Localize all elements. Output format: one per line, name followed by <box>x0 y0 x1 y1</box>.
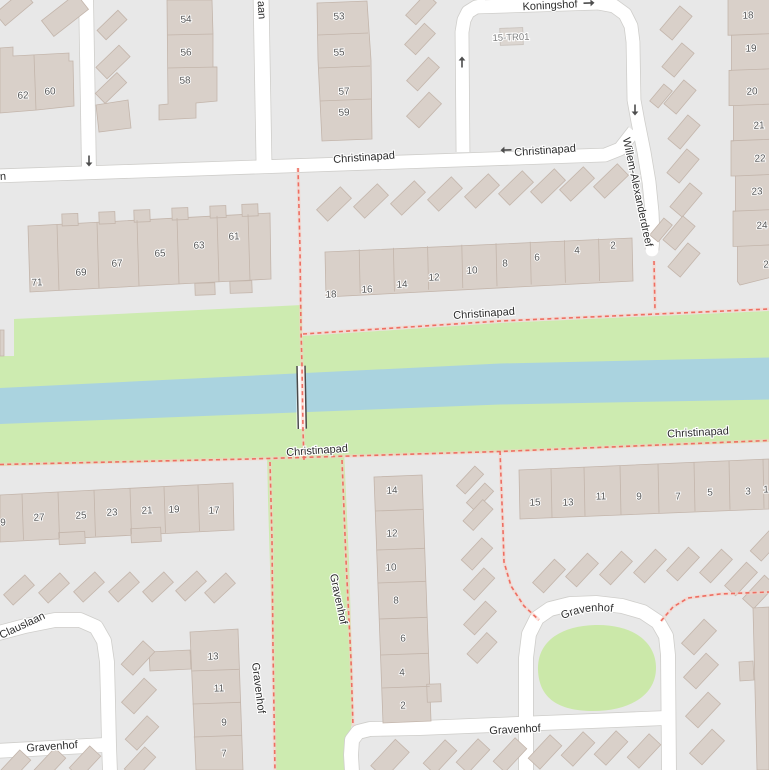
svg-text:2: 2 <box>610 240 616 251</box>
svg-text:54: 54 <box>180 14 192 25</box>
svg-text:21: 21 <box>753 120 765 131</box>
svg-text:9: 9 <box>0 517 6 528</box>
svg-text:13: 13 <box>207 651 219 662</box>
svg-text:59: 59 <box>338 107 350 118</box>
svg-text:aan: aan <box>255 0 268 19</box>
svg-text:12: 12 <box>428 272 440 283</box>
svg-text:4: 4 <box>574 245 580 256</box>
svg-text:7: 7 <box>675 491 681 502</box>
svg-text:18: 18 <box>742 10 754 21</box>
svg-text:21: 21 <box>141 505 153 516</box>
svg-text:3: 3 <box>745 486 751 497</box>
svg-text:10: 10 <box>466 265 478 276</box>
svg-text:23: 23 <box>106 507 118 518</box>
svg-text:18: 18 <box>325 289 337 300</box>
svg-text:9: 9 <box>221 717 227 728</box>
svg-text:62: 62 <box>17 90 29 101</box>
svg-text:58: 58 <box>179 75 191 86</box>
svg-text:69: 69 <box>75 267 87 278</box>
svg-text:19: 19 <box>745 43 757 54</box>
svg-text:11: 11 <box>596 491 607 502</box>
svg-text:63: 63 <box>193 240 205 251</box>
svg-text:22: 22 <box>754 153 766 164</box>
svg-text:7: 7 <box>221 748 227 759</box>
svg-text:13: 13 <box>562 497 574 508</box>
svg-text:8: 8 <box>502 258 508 269</box>
svg-text:23: 23 <box>751 186 763 197</box>
svg-text:71: 71 <box>31 277 43 288</box>
svg-text:4: 4 <box>399 667 405 678</box>
svg-text:6: 6 <box>400 633 406 644</box>
svg-text:20: 20 <box>746 86 758 97</box>
svg-text:57: 57 <box>338 86 350 97</box>
svg-text:11: 11 <box>214 683 225 694</box>
svg-text:n: n <box>0 171 6 183</box>
svg-text:17: 17 <box>208 505 220 516</box>
svg-text:27: 27 <box>33 512 45 523</box>
svg-text:61: 61 <box>228 231 240 242</box>
svg-text:5: 5 <box>707 487 713 498</box>
svg-text:56: 56 <box>180 47 192 58</box>
svg-text:60: 60 <box>44 86 56 97</box>
svg-text:8: 8 <box>393 595 399 606</box>
svg-text:14: 14 <box>386 485 398 496</box>
svg-text:10: 10 <box>385 562 397 573</box>
svg-text:14: 14 <box>396 279 408 290</box>
svg-text:25: 25 <box>75 510 87 521</box>
svg-text:16: 16 <box>361 284 373 295</box>
svg-text:2: 2 <box>400 700 406 711</box>
svg-text:6: 6 <box>534 252 540 263</box>
svg-text:24: 24 <box>756 220 768 231</box>
svg-text:15: 15 <box>529 497 541 508</box>
svg-text:15-TR01: 15-TR01 <box>492 32 529 44</box>
svg-text:67: 67 <box>111 258 123 269</box>
svg-text:2: 2 <box>763 259 769 270</box>
svg-text:1: 1 <box>763 484 769 495</box>
svg-text:55: 55 <box>333 47 345 58</box>
svg-text:53: 53 <box>333 11 345 22</box>
svg-text:9: 9 <box>636 491 642 502</box>
svg-text:65: 65 <box>154 248 166 259</box>
svg-text:19: 19 <box>168 504 180 515</box>
svg-text:12: 12 <box>386 528 398 539</box>
